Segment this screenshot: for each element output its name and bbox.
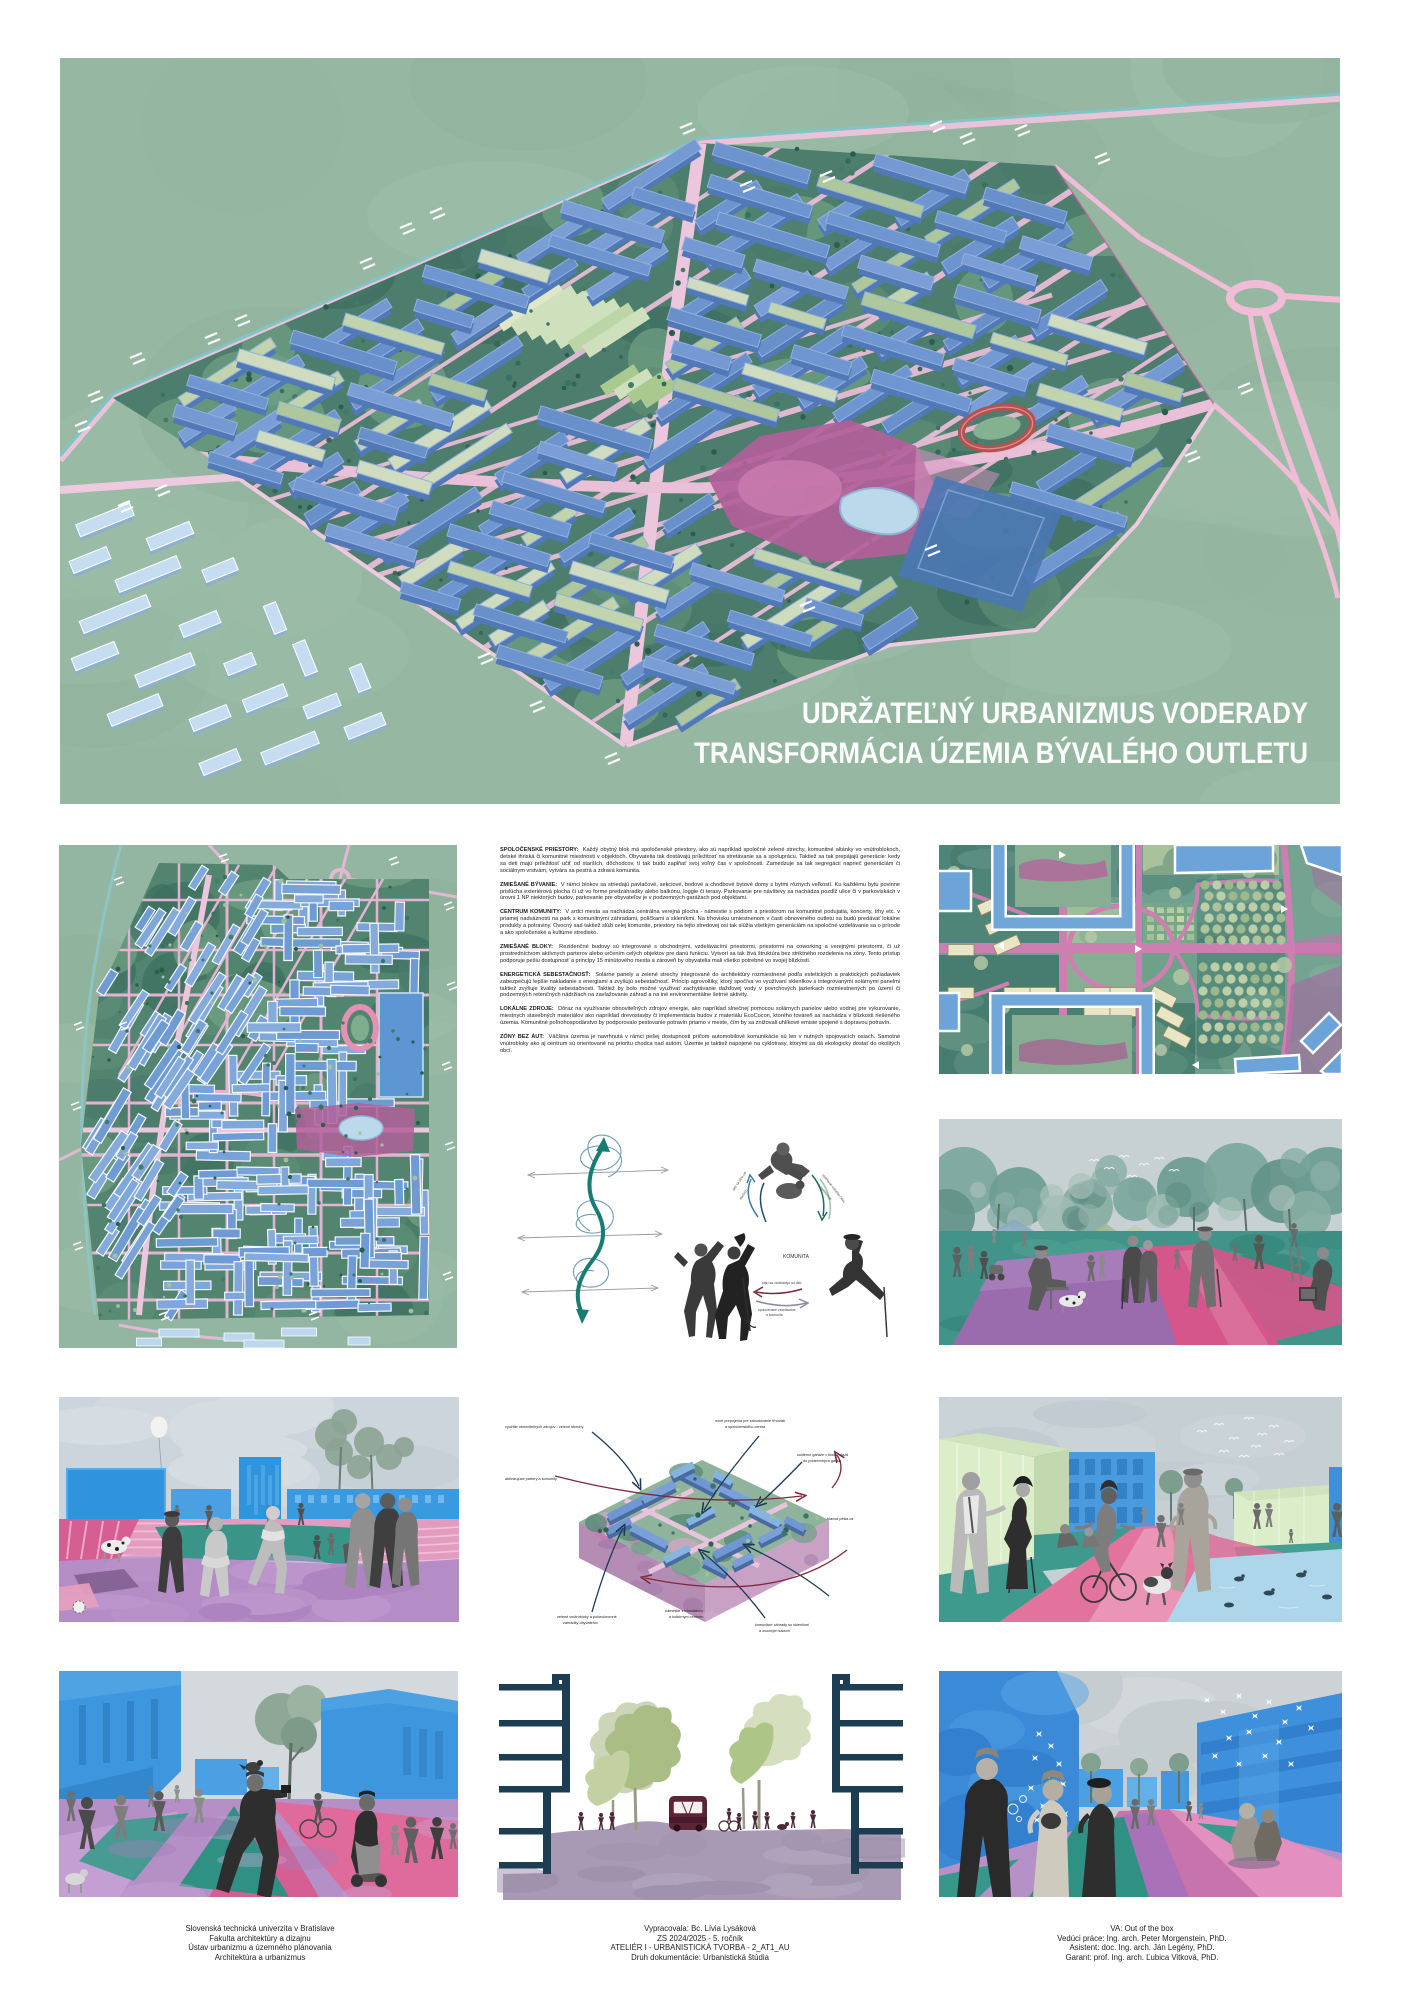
svg-text:a spoločenského centra: a spoločenského centra — [725, 1425, 766, 1429]
svg-text:námestie s trhoviskom: námestie s trhoviskom — [665, 1609, 703, 1613]
svg-text:solitérne garáže v bloku, vjaz: solitérne garáže v bloku, vjazd — [797, 1453, 848, 1457]
svg-text:využitie obnoviteľných zdrojov: využitie obnoviteľných zdrojov - zelené … — [505, 1425, 583, 1429]
svg-text:do podzemných garáží: do podzemných garáží — [803, 1459, 842, 1463]
svg-text:aktivizujúce partery a komunit: aktivizujúce partery a komunity — [505, 1477, 557, 1481]
svg-text:zelené vnútrobloky a polosukro: zelené vnútrobloky a polosukromné — [557, 1615, 617, 1619]
svg-text:starí sa vzdelávajú od detí: starí sa vzdelávajú od detí — [762, 1281, 801, 1285]
svg-text:KOMUNITA: KOMUNITA — [783, 1254, 810, 1260]
svg-text:UDRŽATEĽNÝ URBANIZMUS VODERADY: UDRŽATEĽNÝ URBANIZMUS VODERADY — [802, 696, 1308, 730]
svg-text:a kultúrnym centrom: a kultúrnym centrom — [669, 1615, 703, 1619]
svg-text:starších: starších — [739, 1188, 749, 1200]
svg-text:nové prepojenia pre zabudovani: nové prepojenia pre zabudovanie tŕhovisk — [715, 1419, 785, 1423]
svg-text:spoločenské vzdelávanie: spoločenské vzdelávanie — [758, 1308, 796, 1312]
svg-text:komunitné záhrady so skleníkmi: komunitné záhrady so skleníkmi — [755, 1623, 809, 1627]
svg-text:záhradky obyvateľov: záhradky obyvateľov — [563, 1621, 598, 1625]
svg-text:a komunita: a komunita — [766, 1313, 783, 1317]
svg-text:hlavná péšia os: hlavná péšia os — [827, 1517, 853, 1521]
svg-text:a ovocným sadom: a ovocným sadom — [759, 1629, 790, 1633]
svg-text:TRANSFORMÁCIA ÚZEMIA BÝVALÉHO: TRANSFORMÁCIA ÚZEMIA BÝVALÉHO OUTLETU — [694, 736, 1308, 770]
